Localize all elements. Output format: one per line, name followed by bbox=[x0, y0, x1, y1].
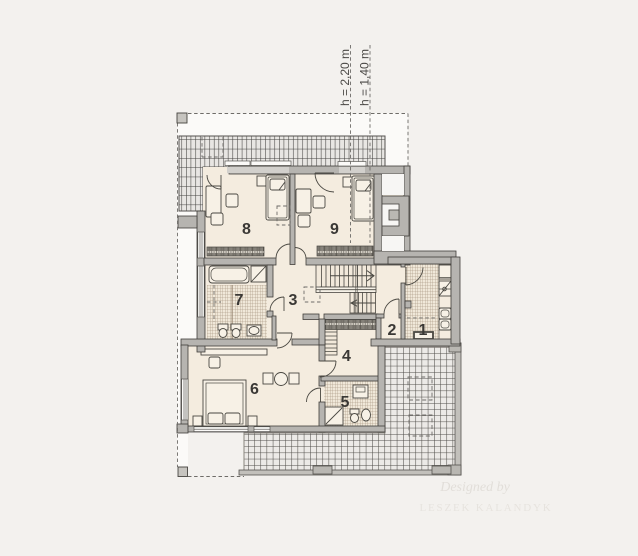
svg-text:4: 4 bbox=[342, 348, 351, 365]
svg-text:LESZEK KALANDYK: LESZEK KALANDYK bbox=[419, 502, 552, 514]
svg-text:7: 7 bbox=[235, 292, 244, 309]
svg-text:6: 6 bbox=[250, 381, 259, 398]
svg-text:5: 5 bbox=[341, 394, 350, 411]
svg-text:2: 2 bbox=[388, 322, 397, 339]
svg-text:1: 1 bbox=[419, 322, 428, 339]
svg-text:9: 9 bbox=[330, 221, 339, 238]
svg-text:8: 8 bbox=[242, 221, 251, 238]
svg-text:h = 2,20 m: h = 2,20 m bbox=[338, 49, 352, 106]
svg-text:h = 1,40 m: h = 1,40 m bbox=[358, 49, 372, 106]
svg-text:3: 3 bbox=[289, 292, 298, 309]
svg-text:Designed by: Designed by bbox=[439, 480, 510, 495]
